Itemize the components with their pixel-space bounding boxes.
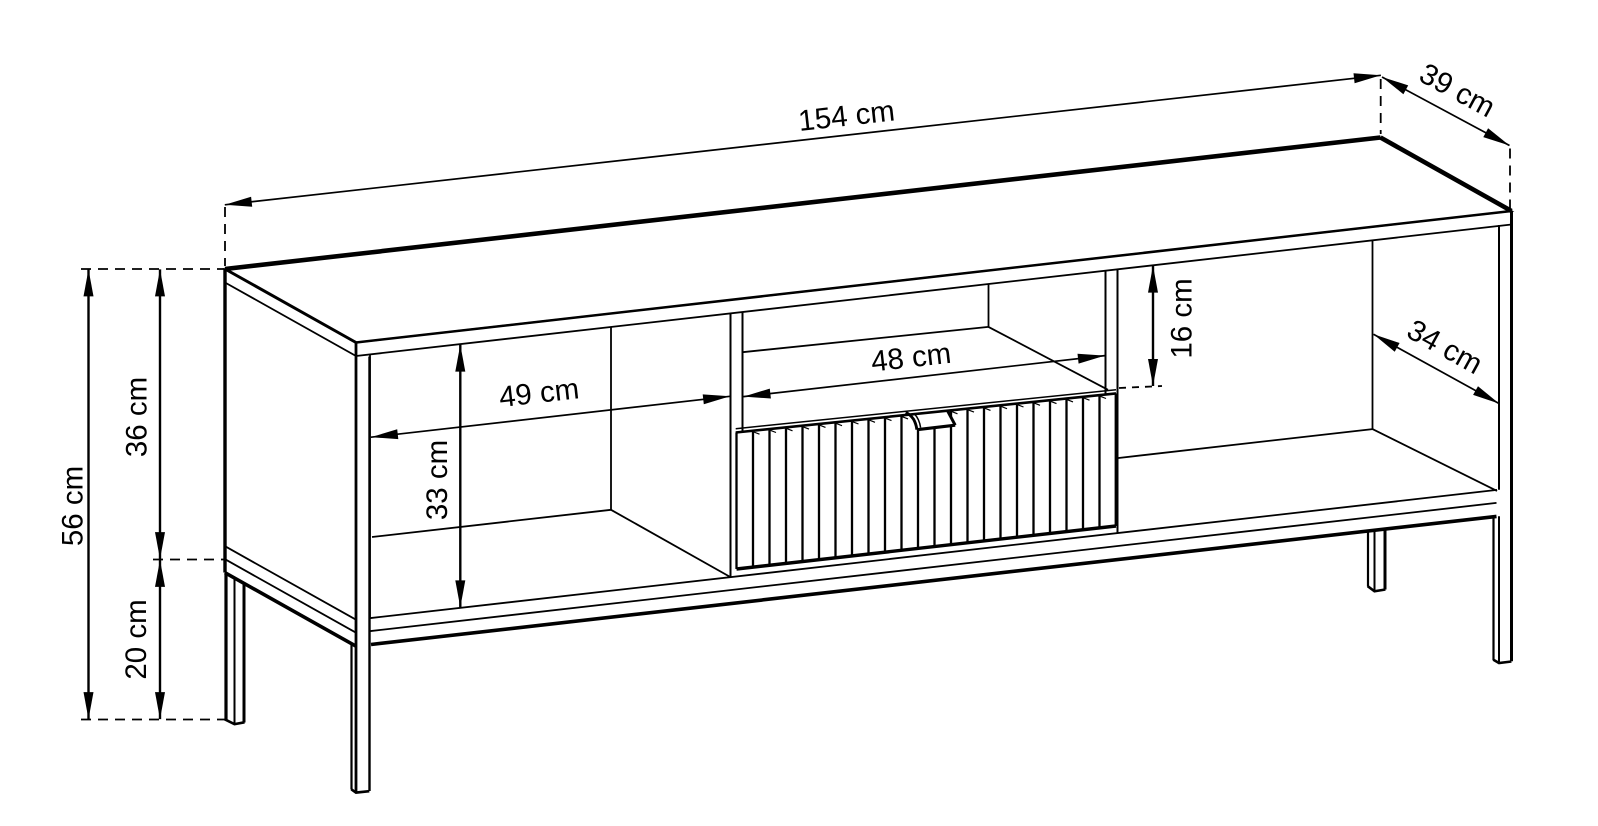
svg-text:39 cm: 39 cm — [1414, 57, 1500, 124]
svg-text:16 cm: 16 cm — [1166, 278, 1199, 358]
svg-text:20 cm: 20 cm — [120, 599, 153, 679]
svg-text:56 cm: 56 cm — [57, 466, 90, 546]
svg-text:36 cm: 36 cm — [121, 377, 154, 457]
svg-text:34 cm: 34 cm — [1402, 313, 1488, 381]
svg-text:49 cm: 49 cm — [497, 372, 581, 414]
svg-text:48 cm: 48 cm — [869, 337, 953, 379]
svg-text:33 cm: 33 cm — [421, 440, 454, 520]
